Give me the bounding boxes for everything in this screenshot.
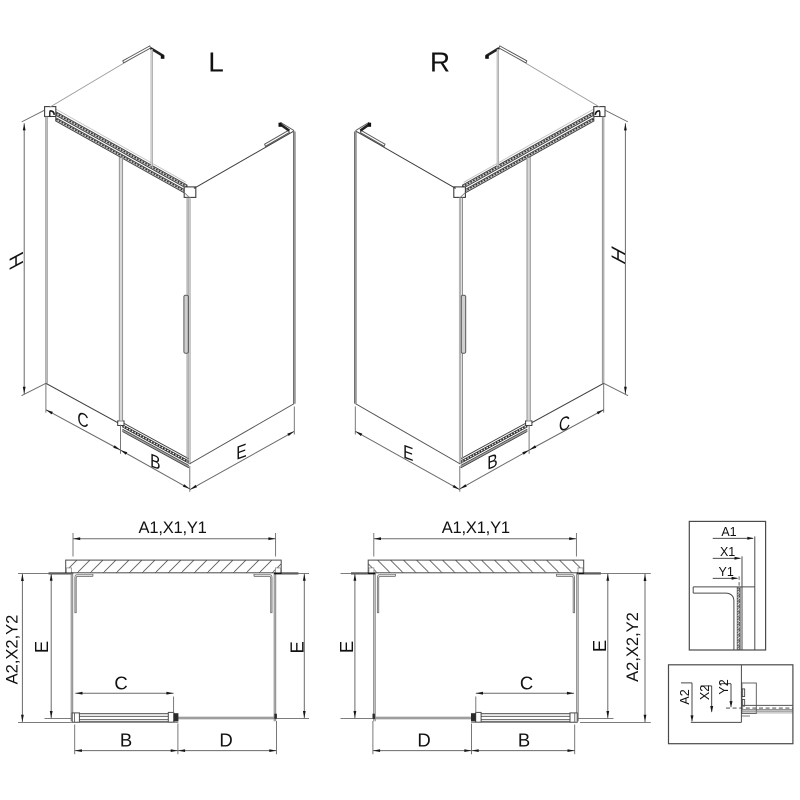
svg-text:B: B (150, 449, 160, 474)
svg-text:C: C (77, 407, 88, 432)
svg-text:R: R (430, 47, 450, 78)
svg-text:A2,X2,Y2: A2,X2,Y2 (4, 615, 22, 685)
svg-text:Y1: Y1 (719, 565, 734, 579)
svg-text:E: E (31, 641, 52, 653)
svg-text:C: C (559, 411, 570, 436)
svg-text:A1,X1,Y1: A1,X1,Y1 (442, 519, 510, 537)
svg-text:A1,X1,Y1: A1,X1,Y1 (139, 519, 207, 537)
svg-text:A2,X2,Y2: A2,X2,Y2 (624, 612, 642, 682)
svg-text:B: B (120, 729, 132, 750)
svg-text:C: C (520, 673, 533, 694)
svg-text:B: B (518, 729, 530, 750)
svg-text:A2: A2 (678, 689, 692, 704)
svg-text:E: E (336, 641, 357, 653)
svg-text:X1: X1 (720, 545, 735, 559)
svg-text:Y2: Y2 (717, 679, 731, 694)
svg-text:D: D (417, 729, 430, 750)
svg-text:E: E (589, 640, 610, 652)
svg-text:X2: X2 (698, 685, 712, 700)
svg-text:B: B (487, 449, 497, 474)
svg-text:E: E (236, 439, 246, 464)
svg-text:C: C (114, 673, 127, 694)
svg-text:A1: A1 (721, 525, 736, 539)
svg-text:D: D (219, 729, 232, 750)
svg-text:E: E (403, 440, 413, 465)
svg-text:L: L (208, 47, 224, 78)
svg-text:E: E (287, 641, 308, 653)
